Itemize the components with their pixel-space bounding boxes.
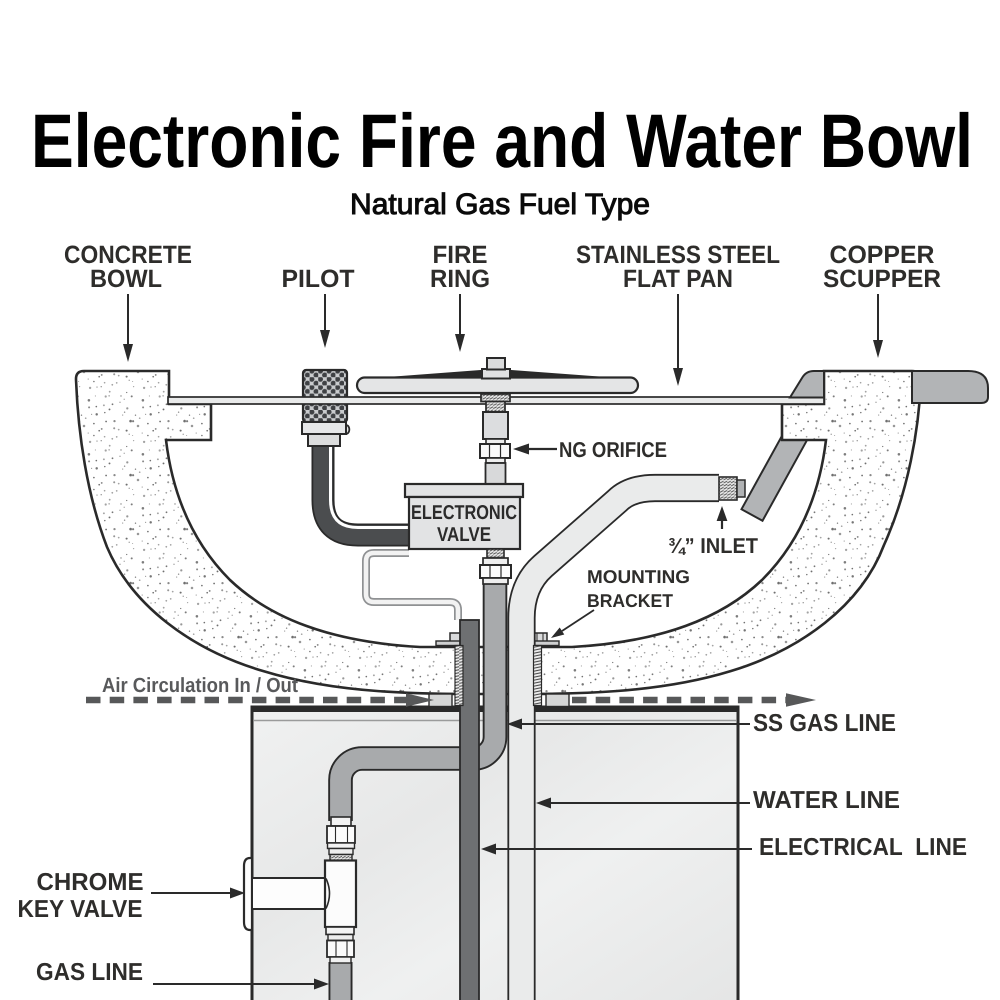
svg-text:MOUNTING: MOUNTING: [587, 566, 690, 587]
svg-text:PILOT: PILOT: [282, 265, 355, 293]
svg-text:VALVE: VALVE: [437, 524, 491, 546]
svg-text:SCUPPER: SCUPPER: [823, 265, 941, 293]
svg-text:Electronic Fire and Water Bowl: Electronic Fire and Water Bowl: [31, 99, 973, 184]
svg-text:BOWL: BOWL: [90, 265, 162, 293]
svg-text:FLAT PAN: FLAT PAN: [623, 265, 733, 293]
svg-text:ELECTRONIC: ELECTRONIC: [411, 502, 517, 524]
svg-text:Natural Gas Fuel Type: Natural Gas Fuel Type: [350, 188, 650, 221]
svg-text:Air Circulation In / Out: Air Circulation In / Out: [102, 674, 298, 697]
svg-text:NG ORIFICE: NG ORIFICE: [559, 438, 667, 462]
svg-text:RING: RING: [430, 265, 490, 293]
svg-text:ELECTRICAL LINE: ELECTRICAL LINE: [759, 834, 967, 861]
svg-text:SS GAS LINE: SS GAS LINE: [753, 710, 896, 737]
svg-text:BRACKET: BRACKET: [587, 590, 674, 611]
svg-text:GAS LINE: GAS LINE: [36, 959, 143, 986]
svg-text:WATER LINE: WATER LINE: [753, 787, 900, 814]
svg-text:CHROME: CHROME: [37, 869, 144, 896]
svg-text:¾” INLET: ¾” INLET: [668, 534, 758, 558]
svg-text:KEY VALVE: KEY VALVE: [18, 896, 143, 923]
